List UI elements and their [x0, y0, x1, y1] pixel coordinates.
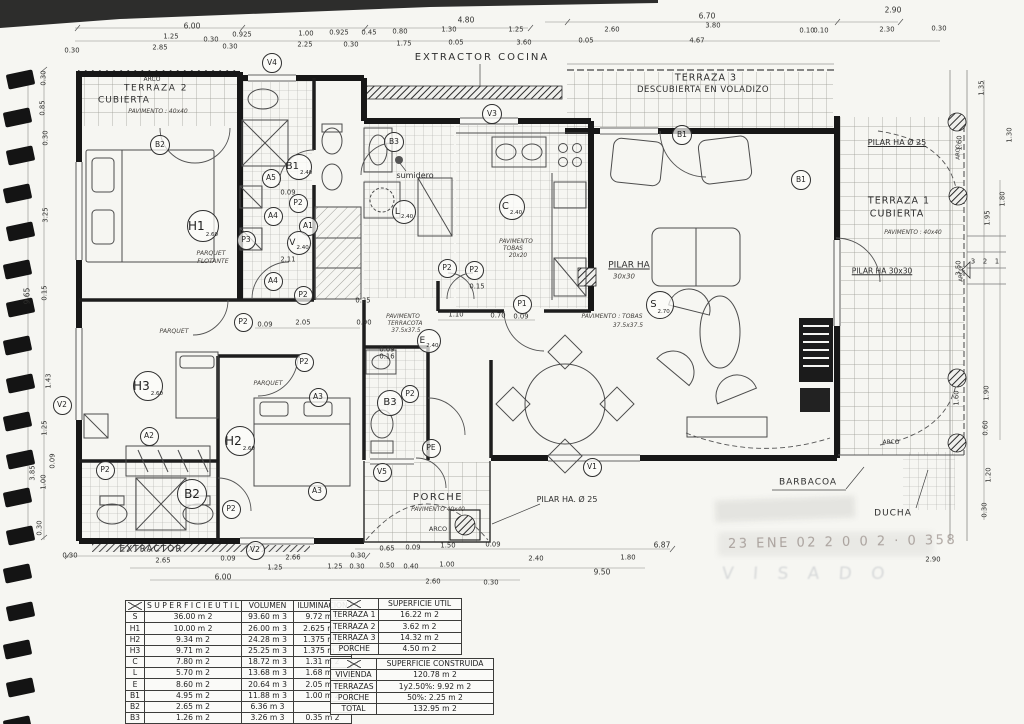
dim-label: 9.50: [594, 568, 611, 576]
dim-label: 1.43: [46, 373, 53, 388]
dim-label: 0.30: [982, 502, 989, 517]
plan-label: DESCUBIERTA EN VOLADIZO: [637, 86, 769, 95]
dim-label: 1.25: [508, 27, 523, 34]
dim-label: 0.30: [64, 48, 79, 55]
dim-label: 6.00: [184, 22, 201, 30]
plan-label: PORCHE: [413, 493, 463, 503]
tag-circle-p1: P1: [513, 295, 532, 314]
dim-label: 9.65: [23, 288, 31, 305]
dim-label: 0.80: [392, 29, 407, 36]
tag-circle-b2: B2: [177, 479, 207, 509]
visado-stamp: V I S A D O: [721, 564, 892, 584]
plan-label: ARCO: [883, 440, 900, 446]
plan-label: PILAR HA Ø 25: [868, 139, 926, 147]
dim-label: 2.85: [152, 45, 167, 52]
dim-label: 0.30: [349, 564, 364, 571]
table-header-row: SUPERFICIE UTIL: [331, 599, 462, 610]
dim-label: 1.60: [954, 390, 961, 405]
table-row: B22.65 m 26.36 m 3: [126, 701, 352, 712]
dim-label: 0.09: [513, 314, 528, 321]
plan-label: TOBAS: [503, 247, 523, 253]
table-row: B14.95 m 211.88 m 31.00 m 2: [126, 690, 352, 701]
dim-label: 0.60: [983, 420, 990, 435]
tag-circle-v3: V3: [482, 104, 502, 124]
table-row: TERRAZA 314.32 m 2: [331, 632, 462, 643]
plan-label: ARCO: [429, 526, 447, 533]
dim-label: 1.20: [986, 467, 993, 482]
tag-circle-v1: V1: [583, 458, 602, 477]
tag-circle-p2: P2: [96, 461, 115, 480]
table-row: B31.26 m 23.26 m 30.35 m 2: [126, 712, 352, 723]
dim-label: 4.67: [689, 38, 704, 45]
dim-label: 3.80: [705, 23, 720, 30]
tag-circle-v2: V2: [246, 541, 265, 560]
dim-label: 2.60: [604, 27, 619, 34]
plan-label: 37.5x37.5: [391, 329, 420, 335]
plan-label: 20x20: [509, 254, 527, 260]
dim-label: 0.10: [799, 28, 814, 35]
plan-label: PARQUET: [253, 381, 282, 387]
plan-label: PAVIMENTO : 40x40: [884, 231, 942, 237]
dim-label: 1.35: [979, 80, 986, 95]
dim-label: 2.30: [879, 27, 894, 34]
dim-label: 0.30: [222, 44, 237, 51]
terrace-surface-table: SUPERFICIE UTILTERRAZA 116.22 m 2TERRAZA…: [330, 598, 462, 655]
dim-label: 1.80: [620, 555, 635, 562]
dim-label: 1.50: [440, 543, 455, 550]
table-row: C7.80 m 218.72 m 31.31 m 2: [126, 656, 352, 667]
tag-circle-v2: V2: [53, 396, 72, 415]
dim-label: 1.30: [1007, 127, 1014, 142]
dim-label: 1.25: [267, 565, 282, 572]
tag-circle-l: L2.40: [392, 200, 416, 224]
sumidero-drain: [395, 156, 403, 164]
plan-label: 30x30: [613, 274, 635, 281]
dim-label: 0.09: [485, 542, 500, 549]
tag-circle-v: V2.40: [287, 231, 311, 255]
dim-label: 0.925: [329, 30, 348, 37]
dim-label: 0.05: [578, 38, 593, 45]
plan-label: CUBIERTA: [98, 97, 150, 106]
surface-volume-table: S U P E R F I C I E U T I LVOLUMENILUMIN…: [125, 600, 352, 724]
dim-label: 2.60: [425, 579, 440, 586]
tag-circle-b3: B3: [377, 390, 403, 416]
tag-circle-p2: P2: [401, 385, 419, 403]
dim-label: 0.09: [405, 545, 420, 552]
tag-circle-p2: P2: [234, 313, 253, 332]
dim-label: 2.90: [925, 557, 940, 564]
plan-label: PAVIMENTO: [386, 315, 420, 321]
dim-label: 2.90: [885, 6, 902, 14]
dim-label: 0.65: [379, 546, 394, 553]
scan-artifact-top: [0, 0, 658, 28]
tag-circle-a3: A3: [309, 388, 328, 407]
tag-circle-h2: H22.60: [225, 426, 255, 456]
plan-label: 2: [983, 259, 987, 266]
dim-label: 1.00: [298, 31, 313, 38]
scanned-floorplan-page: 23 ENE 02 2 0 0 2 · 0 358 V I S A D O AR…: [0, 0, 1024, 724]
dim-label: 1.25: [327, 564, 342, 571]
tag-circle-p2: P2: [438, 259, 457, 278]
tag-circle-h3: H32.60: [133, 371, 163, 401]
dim-label: 1.80: [1000, 191, 1007, 206]
dim-label: 0.30: [37, 520, 44, 535]
tag-circle-a4: A4: [264, 272, 283, 291]
table-row: PORCHE50%: 2.25 m 2: [331, 692, 494, 703]
tag-circle-e: E2.40: [417, 329, 441, 353]
plan-label: PARQUET: [159, 329, 188, 335]
tag-circle-c: C2.40: [499, 194, 525, 220]
dim-label: 0.09: [50, 453, 57, 468]
table-row: TERRAZA 23.62 m 2: [331, 621, 462, 632]
dim-label: 0.70: [490, 313, 505, 320]
dim-label: 0.09: [257, 322, 272, 329]
dim-label: 2.65: [155, 558, 170, 565]
table-row: H110.00 m 226.00 m 32.625 m 2: [126, 623, 352, 634]
dim-label: 1.25: [163, 34, 178, 41]
dim-label: 0.25: [355, 298, 370, 305]
plan-label: 1: [995, 259, 999, 266]
dim-label: 2.05: [295, 320, 310, 327]
table-row: H39.71 m 225.25 m 31.375 m 2: [126, 645, 352, 656]
tag-circle-p3: P3: [237, 231, 256, 250]
plan-label: TERRAZA 1: [868, 196, 930, 206]
tag-circle-pe: PE: [422, 439, 441, 458]
dim-label: 0.05: [448, 40, 463, 47]
table-row: L5.70 m 213.68 m 31.68 m 2: [126, 668, 352, 679]
table-row: S36.00 m 293.60 m 39.72 m 2: [126, 612, 352, 623]
plan-label: sumidero: [396, 172, 433, 180]
plan-label: ARCO: [144, 77, 161, 83]
dim-label: 3.85: [30, 465, 37, 480]
dim-label: 2.66: [285, 555, 300, 562]
dim-label: 0.30: [343, 42, 358, 49]
dim-label: 1.90: [984, 385, 991, 400]
tag-circle-p2: P2: [295, 353, 314, 372]
plan-label: EXTRACTOR COCINA: [415, 53, 550, 63]
tag-circle-h1: H12.60: [187, 210, 219, 242]
dim-label: 0.40: [403, 564, 418, 571]
plan-label: PAVIMENTO : TOBAS: [581, 314, 642, 320]
plan-label: BARBACOA: [779, 479, 837, 488]
dim-label: 1.00: [439, 562, 454, 569]
table-row: VIVIENDA120.78 m 2: [331, 670, 494, 681]
dim-label: 1.10: [448, 312, 463, 319]
dim-label: 0.15: [42, 285, 49, 300]
tag-circle-p2: P2: [294, 286, 313, 305]
dim-label: 2.11: [280, 257, 295, 264]
tag-circle-b2: B2: [150, 135, 170, 155]
tag-circle-a2: A2: [140, 427, 159, 446]
dim-label: 3.50: [956, 260, 963, 275]
dim-label: 0.30: [931, 26, 946, 33]
table-header-row: S U P E R F I C I E U T I LVOLUMENILUMIN…: [126, 601, 352, 612]
table-row: TERRAZAS1y2.50%: 9.92 m 2: [331, 681, 494, 692]
dim-label: 0.30: [41, 70, 48, 85]
crossed-box-icon: [347, 660, 361, 668]
plan-label: PILAR HA: [608, 262, 650, 271]
dim-label: 0.30: [43, 130, 50, 145]
dim-label: 0.10: [813, 28, 828, 35]
dim-label: 1.60: [957, 135, 964, 150]
dim-label: 0.90: [356, 320, 371, 327]
tag-circle-a4: A4: [264, 207, 283, 226]
tag-circle-a5: A5: [262, 169, 281, 188]
table-header-row: SUPERFICIE CONSTRUIDA: [331, 659, 494, 670]
dim-label: 1.75: [396, 41, 411, 48]
tag-circle-v4: V4: [262, 53, 282, 73]
table-row: PORCHE4.50 m 2: [331, 643, 462, 654]
dim-label: 2.40: [528, 556, 543, 563]
dim-label: 1.00: [41, 474, 48, 489]
plan-label: DUCHA: [874, 510, 912, 519]
fireplace: [799, 318, 833, 412]
dim-label: 0.15: [469, 284, 484, 291]
tag-circle-b1: B1: [672, 125, 692, 145]
dim-label: 0.09: [220, 556, 235, 563]
crossed-box-icon: [128, 602, 142, 610]
dim-label: 0.30: [203, 37, 218, 44]
tag-circle-s: S2.70: [646, 291, 674, 319]
dim-label: 0.85: [40, 100, 47, 115]
dim-label: 0.50: [379, 563, 394, 570]
dim-label: 1.95: [985, 210, 992, 225]
table-row: H29.34 m 224.28 m 31.375 m 2: [126, 634, 352, 645]
plan-label: TERRAZA 3: [675, 73, 737, 83]
dim-label: 4.80: [458, 16, 475, 24]
plan-label: 37.5x37.5: [613, 323, 643, 329]
plan-label: PARQUET: [196, 251, 225, 257]
tag-circle-p2: P2: [222, 500, 241, 519]
tag-circle-a3: A3: [308, 482, 327, 501]
plan-label: PAVIMENTO: [499, 240, 533, 246]
tag-circle-b1: B12.40: [286, 154, 312, 180]
plan-label: PAVIMENTO : 40x40: [128, 109, 188, 115]
plan-label: TERRAZA 2: [124, 85, 188, 94]
plan-label: EXTRACTOR: [119, 546, 182, 555]
dim-label: 1.25: [42, 420, 49, 435]
plan-label: PILAR HA 30x30: [852, 267, 913, 275]
tag-circle-b1: B1: [791, 170, 811, 190]
dim-label: 0.30: [483, 580, 498, 587]
dim-label: 0.925: [232, 32, 251, 39]
dim-label: 1.30: [441, 27, 456, 34]
dim-label: 0.09: [280, 190, 295, 197]
dim-label: 0.16: [379, 354, 394, 361]
plan-label: 3: [971, 259, 975, 266]
dim-label: 3.25: [43, 207, 50, 222]
dim-label: 2.25: [297, 42, 312, 49]
dim-label: 0.30: [350, 553, 365, 560]
plan-label: FLOTANTE: [197, 259, 228, 265]
plan-label: CUBIERTA: [870, 209, 924, 219]
table-row: TOTAL132.95 m 2: [331, 703, 494, 714]
table-row: TERRAZA 116.22 m 2: [331, 610, 462, 621]
plan-label: PAVIMENTO 40x40: [411, 508, 465, 514]
crossed-box-icon: [347, 600, 361, 608]
dim-label: 0.45: [361, 30, 376, 37]
dim-label: 6.00: [215, 573, 232, 581]
tag-circle-p2: P2: [465, 261, 484, 280]
plan-label: PILAR HA. Ø 25: [537, 496, 598, 504]
dim-label: 6.87: [654, 541, 671, 549]
dim-label: 6.70: [699, 12, 716, 20]
built-surface-table: SUPERFICIE CONSTRUIDAVIVIENDA120.78 m 2T…: [330, 658, 494, 715]
dim-label: 0.30: [62, 553, 77, 560]
tag-circle-b3: B3: [384, 132, 404, 152]
plan-label: TERRACOTA: [388, 322, 423, 328]
tag-circle-v5: V5: [373, 463, 392, 482]
table-row: E8.60 m 220.64 m 32.05 m 2: [126, 679, 352, 690]
dim-label: 3.60: [516, 40, 531, 47]
